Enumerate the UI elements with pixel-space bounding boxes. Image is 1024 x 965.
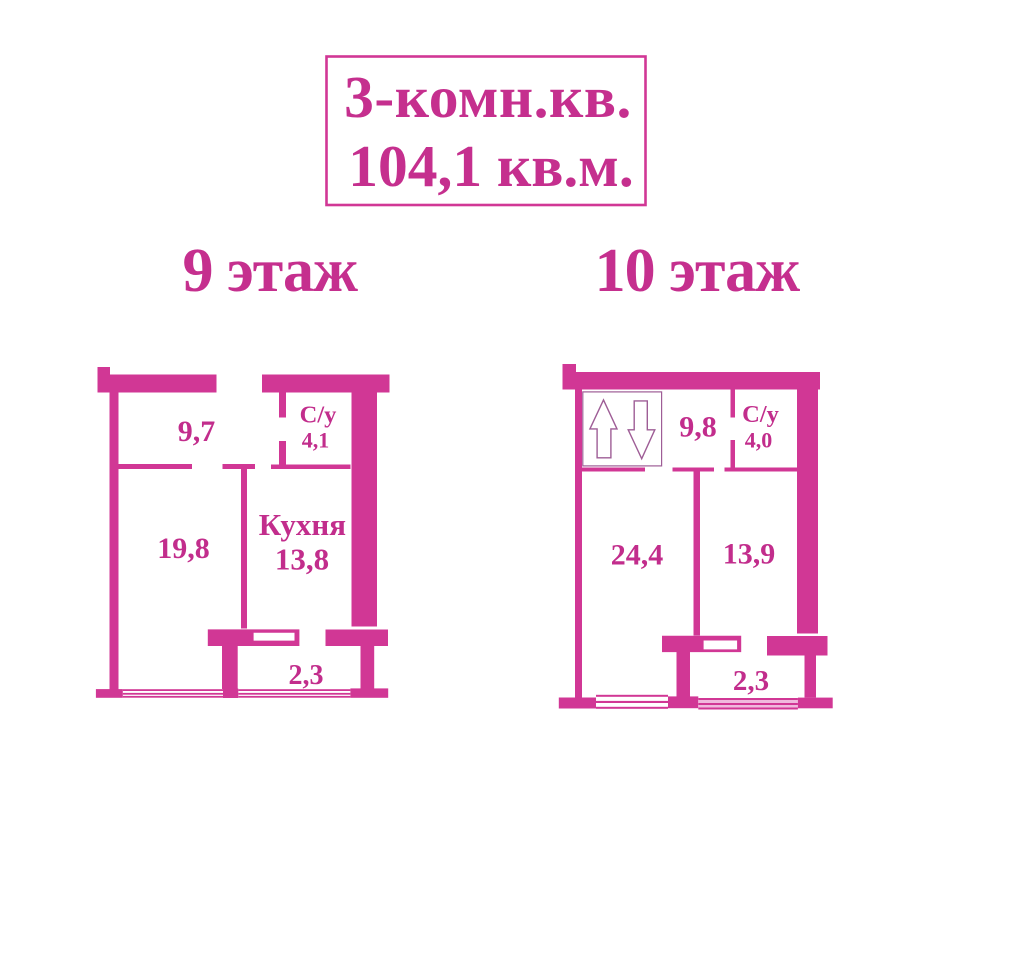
svg-text:Кухня: Кухня <box>259 507 346 542</box>
svg-text:24,4: 24,4 <box>611 539 664 572</box>
svg-text:4,1: 4,1 <box>302 427 330 452</box>
svg-text:13,8: 13,8 <box>275 542 329 577</box>
svg-text:10 этаж: 10 этаж <box>595 237 801 305</box>
svg-text:104,1 кв.м.: 104,1 кв.м. <box>348 133 633 199</box>
svg-text:19,8: 19,8 <box>157 532 210 565</box>
svg-text:2,3: 2,3 <box>733 665 769 697</box>
svg-text:13,9: 13,9 <box>723 538 776 571</box>
svg-text:С/у: С/у <box>742 401 780 428</box>
svg-text:9,8: 9,8 <box>679 411 717 444</box>
svg-text:3-комн.кв.: 3-комн.кв. <box>344 64 632 130</box>
svg-text:С/у: С/у <box>300 401 338 428</box>
svg-text:9 этаж: 9 этаж <box>182 237 358 305</box>
svg-text:4,0: 4,0 <box>745 427 773 452</box>
svg-text:9,7: 9,7 <box>178 415 216 448</box>
svg-text:2,3: 2,3 <box>289 660 324 691</box>
